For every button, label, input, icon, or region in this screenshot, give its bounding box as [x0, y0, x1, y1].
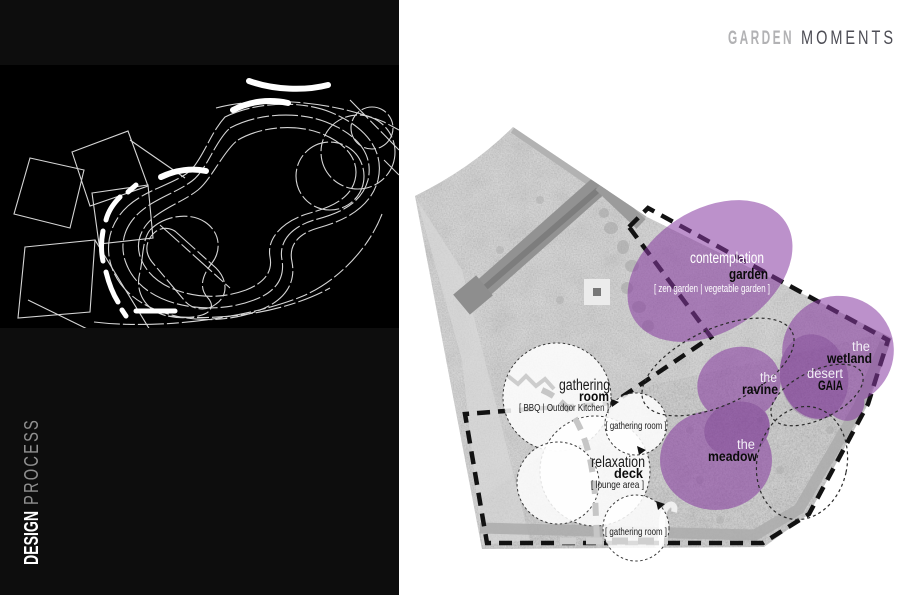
svg-text:[ gathering room ]: [ gathering room ]: [606, 421, 667, 432]
svg-text:DESIGN PROCESS: DESIGN PROCESS: [21, 418, 43, 565]
svg-text:garden: garden: [729, 267, 768, 283]
svg-text:GAIA: GAIA: [818, 378, 843, 393]
svg-text:[ BBQ | Outdoor Kitchen ]: [ BBQ | Outdoor Kitchen ]: [519, 402, 609, 414]
svg-text:[ zen garden | vegetable garde: [ zen garden | vegetable garden ]: [654, 283, 770, 295]
svg-text:wetland: wetland: [826, 351, 872, 366]
svg-text:[ lounge area ]: [ lounge area ]: [591, 479, 644, 491]
svg-text:contemplation: contemplation: [690, 250, 764, 267]
svg-text:meadow: meadow: [708, 449, 757, 464]
svg-text:ravine: ravine: [742, 382, 778, 397]
svg-text:[ gathering room ]: [ gathering room ]: [605, 527, 667, 538]
